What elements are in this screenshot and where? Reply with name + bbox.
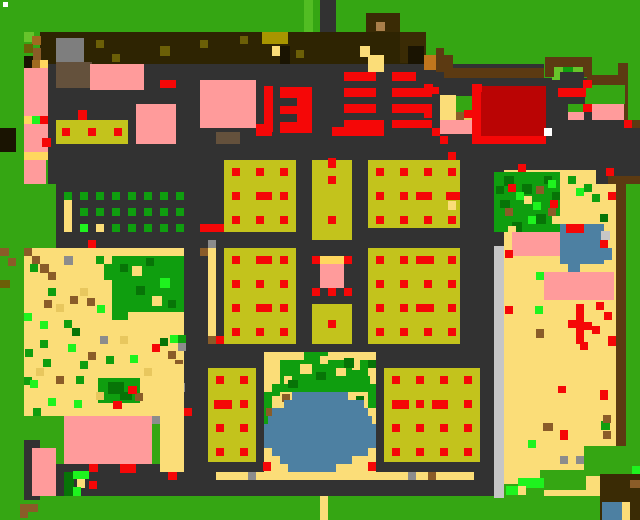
red-speck (505, 306, 513, 314)
light-grass-stripe (304, 0, 313, 32)
green-speck (40, 340, 48, 348)
roof-dot-wide (256, 192, 272, 200)
brown-speck (168, 351, 176, 359)
roof-dot (424, 328, 432, 336)
fence-piece (632, 120, 640, 128)
margin-brown-speck (0, 248, 9, 256)
west-green-tile (32, 116, 40, 124)
red-speck (550, 200, 558, 208)
roof-dot (328, 320, 336, 328)
red-dot (472, 84, 482, 92)
red-dot (344, 256, 352, 264)
bright-green-speck (24, 313, 32, 321)
red-speck (604, 312, 612, 320)
tan-block-top (368, 55, 384, 72)
gray-speck (178, 343, 186, 351)
gray-speck (576, 456, 584, 464)
roof-tan-tile (448, 201, 456, 210)
roof-dot (376, 280, 384, 288)
west-yellow-row (24, 152, 48, 160)
dark-red-edge (472, 86, 481, 136)
red-bar (344, 104, 376, 113)
tan-path-narrow (208, 248, 216, 336)
bright-green-speck (68, 344, 76, 352)
gray-tile (408, 472, 416, 480)
bright-green-speck (97, 305, 105, 313)
red-speck (576, 328, 584, 336)
treeline-dark-tile (408, 46, 424, 64)
red-bar-east (558, 88, 586, 97)
west-pink-column (24, 160, 46, 184)
roof-dot-wide (416, 256, 434, 264)
autumn-tile (33, 48, 41, 56)
red-dot (440, 136, 448, 144)
pink-strip (440, 120, 472, 134)
roof-dot (400, 256, 408, 264)
dark-green-speck (120, 264, 128, 272)
farm-plot (160, 208, 168, 216)
red-dot-wide (120, 464, 136, 473)
red-dot (431, 87, 439, 94)
grass-regrowth (540, 470, 586, 490)
red-dot (263, 462, 271, 471)
gray-speck (152, 416, 160, 424)
vegetation-hole (336, 368, 346, 376)
corner-water (602, 502, 622, 520)
red-speck (576, 320, 584, 328)
pink-block-east (592, 104, 624, 120)
dirt-speck (120, 336, 128, 344)
roof-dot-wide (432, 400, 448, 409)
roof-dot (280, 328, 288, 336)
bright-green-speck (74, 400, 82, 408)
bright-green-speck (528, 216, 536, 224)
tan-path-column (160, 364, 184, 472)
roof-dot (232, 256, 240, 264)
red-speck (89, 481, 97, 489)
brown-speck (536, 329, 544, 338)
roof-dot (416, 400, 424, 408)
red-dot (89, 464, 98, 472)
green-speck (80, 361, 88, 369)
roof-dot (448, 256, 456, 264)
green-speck (584, 184, 592, 192)
roof-dot (232, 192, 240, 200)
red-bar (392, 120, 432, 128)
farm-plot-bright (80, 224, 88, 232)
red-dot (518, 164, 526, 172)
fence-horizontal (444, 68, 544, 78)
building-pink-big (64, 416, 152, 464)
brown-tile (428, 472, 436, 480)
red-dot (583, 104, 592, 112)
red-speck (600, 390, 608, 400)
roof-dot (440, 424, 448, 432)
cluster-hole (552, 216, 560, 224)
brown-speck (548, 208, 556, 216)
red-dot (624, 120, 632, 128)
roof-dot (280, 216, 288, 224)
red-dot (464, 110, 472, 118)
farm-plot (160, 224, 168, 232)
roof-dot (448, 168, 456, 176)
farm-plot (176, 208, 184, 216)
roof-dot (328, 176, 336, 184)
farm-plot (160, 192, 168, 200)
green-speck (64, 320, 72, 328)
roof-dot (392, 448, 400, 456)
farm-plot (128, 192, 136, 200)
roof-dot (424, 168, 432, 176)
fence-stub (436, 48, 444, 72)
bright-green-speck (130, 355, 138, 363)
farm-plot (176, 192, 184, 200)
fence-arch-leg (545, 57, 554, 77)
farm-plot (80, 192, 88, 200)
white-speck (3, 2, 8, 7)
dark-green-speck (146, 258, 154, 266)
treeline-speck (200, 40, 208, 48)
pond (284, 400, 364, 408)
roof-dot-wide (416, 304, 434, 312)
grass-tile (568, 104, 584, 112)
brown-speck (603, 431, 611, 439)
corner-tan-column (622, 502, 630, 520)
brown-tile (208, 336, 216, 344)
brown-roof-small (216, 132, 240, 144)
pond (272, 448, 368, 456)
farm-plot (112, 208, 120, 216)
bright-green-speck (516, 192, 524, 200)
pond (264, 424, 376, 448)
roof-dot (464, 424, 472, 432)
dirt-speck (80, 288, 88, 296)
pond-vegetation (272, 384, 280, 396)
bright-green-speck (160, 278, 170, 288)
red-dot (312, 288, 320, 296)
building-pink-large (200, 80, 256, 128)
dark-green-tile (288, 380, 298, 388)
roof-dot (400, 328, 408, 336)
farm-plot (64, 192, 72, 200)
dark-green-speck (168, 300, 176, 308)
red-speck (568, 320, 576, 328)
red-speck (560, 430, 568, 440)
bright-green-speck (48, 398, 56, 406)
bright-green-speck (576, 188, 584, 196)
autumn-tile (24, 60, 32, 68)
dark-green-tile (316, 372, 326, 380)
red-speck (584, 322, 592, 330)
brown-speck (56, 376, 64, 384)
roof-dot (256, 168, 264, 176)
roof-dot (216, 376, 224, 384)
dark-red-bottom (472, 136, 546, 144)
cluster-hole (152, 296, 162, 306)
roof-dot (216, 448, 224, 456)
roof-dot (240, 400, 248, 408)
cluster-hole (132, 266, 142, 276)
south-exit-path (320, 496, 328, 520)
roof-dot (448, 328, 456, 336)
farm-plot (96, 192, 104, 200)
roof-dot (400, 192, 408, 200)
red-dot (432, 128, 440, 136)
gray-roof-block (56, 38, 84, 62)
roof-dot (88, 128, 96, 136)
roof-dot (280, 280, 288, 288)
roof-dot (280, 256, 288, 264)
roof-dot-wide (256, 304, 272, 312)
pond (268, 416, 372, 424)
roof-dot (256, 328, 264, 336)
green-speck (30, 264, 38, 272)
tan-tile (518, 486, 526, 495)
dirt-speck (36, 368, 44, 376)
red-structure-foot (256, 124, 272, 136)
red-speck (608, 336, 616, 346)
red-speck (152, 344, 160, 352)
roof-dot (400, 304, 408, 312)
farm-plot (144, 224, 152, 232)
treeline-speck (112, 54, 120, 62)
water-bump (568, 264, 580, 272)
brown-speck (603, 415, 611, 423)
roof-dot-wide (416, 192, 432, 200)
green-speck (76, 376, 84, 384)
pink-tile (568, 112, 584, 120)
roof-dot (256, 280, 264, 288)
dirt-speck (144, 368, 152, 376)
autumn-tile (24, 44, 33, 53)
roof-dot (464, 400, 472, 408)
red-structure-notch (280, 98, 297, 106)
dark-green-speck (160, 338, 168, 346)
autumn-tile (32, 60, 40, 68)
autumn-tile (40, 60, 48, 68)
brown-speck (70, 296, 78, 304)
dark-green-speck (500, 200, 510, 208)
roof-dot (376, 192, 384, 200)
roof-dot (392, 376, 400, 384)
water-bump (604, 248, 612, 260)
roof-dot (448, 304, 456, 312)
roof-dot (62, 128, 70, 136)
roof-dot-wide (256, 256, 272, 264)
red-structure-notch (280, 114, 297, 122)
roof-dot (440, 448, 448, 456)
roof-dot (464, 448, 472, 456)
bright-green-speck (533, 202, 541, 210)
west-yellow-tile (24, 116, 32, 124)
pink-center-awning (320, 256, 344, 264)
farm-plot (80, 208, 88, 216)
farm-plot (112, 192, 120, 200)
green-speck (178, 335, 186, 343)
red-dot (78, 110, 87, 120)
red-bar (392, 72, 416, 81)
bright-green-speck (30, 380, 38, 388)
roof-dot-wide (446, 192, 460, 200)
gray-tile (208, 240, 216, 248)
dark-green-speck (72, 328, 80, 336)
green-speck (568, 176, 576, 184)
roof-dot (240, 448, 248, 456)
gray-tile (601, 231, 610, 240)
grove-light-brown (376, 22, 385, 31)
roof-dot (448, 216, 456, 224)
farm-plot-tan (96, 224, 104, 232)
red-speck (576, 312, 584, 320)
roof-dot (376, 168, 384, 176)
roof-dot (232, 216, 240, 224)
red-speck (580, 342, 588, 350)
roof-dot (448, 280, 456, 288)
roof-dot (280, 304, 288, 312)
dark-green-speck (496, 186, 504, 194)
dark-green-tile (344, 358, 354, 368)
red-dot (583, 80, 592, 88)
dirt-speck (56, 304, 64, 312)
white-tile (544, 128, 552, 136)
fence-arch-leg (583, 57, 592, 77)
gray-speck (560, 456, 568, 464)
red-speck (576, 304, 584, 312)
roof-dot (232, 168, 240, 176)
bright-green-speck (40, 321, 48, 329)
roof-dot (392, 424, 400, 432)
red-dot (505, 250, 513, 258)
building-dark-red (472, 86, 546, 138)
roof-dot (280, 168, 288, 176)
building-pink-east-1 (512, 232, 560, 256)
roof-dot (240, 376, 248, 384)
roof-dot (440, 376, 448, 384)
red-dot (312, 256, 320, 264)
red-speck (608, 192, 616, 200)
red-dot (184, 408, 192, 416)
dark-green-tile (368, 360, 376, 368)
west-red-tile (40, 116, 48, 124)
roof-dot (400, 280, 408, 288)
brown-speck (32, 256, 40, 264)
treeline-speck (296, 50, 304, 58)
pond-vegetation (360, 376, 370, 388)
red-dot (328, 288, 336, 296)
red-dot (368, 462, 376, 471)
roof-dot (232, 304, 240, 312)
farm-plot (112, 224, 120, 232)
roof-dot (464, 376, 472, 384)
brown-speck (543, 423, 553, 431)
roof-dot (400, 216, 408, 224)
farm-plot (128, 208, 136, 216)
brown-speck (536, 186, 544, 194)
corner-brown-tile (630, 480, 640, 488)
brown-speck (505, 208, 513, 216)
red-bar-notch (332, 120, 344, 127)
red-speck (558, 386, 566, 393)
roof-dot-wide (392, 400, 409, 409)
red-dot (424, 110, 432, 118)
bright-green-speck (535, 306, 543, 314)
gray-speck (64, 256, 73, 265)
brown-speck (48, 272, 56, 280)
pixel-map (0, 0, 640, 520)
building-pink-center (320, 264, 344, 288)
brown-mark (20, 504, 28, 518)
roof-dot (416, 448, 424, 456)
red-speck (128, 386, 137, 394)
pond (292, 392, 348, 400)
bright-green-speck (548, 180, 556, 188)
dark-block (560, 72, 584, 88)
roof-dot (424, 280, 432, 288)
building-pink-tall (32, 448, 56, 496)
treeline-speck (240, 36, 248, 44)
west-dark-block (0, 128, 16, 152)
roof-dot (280, 192, 288, 200)
brown-speck (44, 300, 52, 308)
farm-plot (96, 208, 104, 216)
brown-speck (87, 298, 95, 306)
vegetation-hole (300, 364, 312, 374)
farm-plot (144, 208, 152, 216)
red-dot (168, 472, 177, 480)
pond (280, 456, 352, 464)
green-speck (43, 359, 51, 367)
roof-dot-wide (214, 400, 232, 409)
bright-green-speck (528, 440, 536, 448)
red-dot (600, 240, 608, 248)
roof-dot (416, 376, 424, 384)
red-bar-small (200, 224, 224, 232)
brown-tile (200, 248, 208, 256)
red-bar (344, 72, 376, 81)
dark-green-speck (136, 286, 145, 295)
roof-dot (328, 216, 336, 224)
gray-tile (248, 472, 256, 480)
cluster-hole (524, 196, 532, 204)
pond (272, 408, 368, 416)
red-bar (344, 88, 376, 97)
green-speck (25, 349, 33, 357)
treeline-speck (160, 46, 170, 56)
gray-speck (100, 336, 108, 344)
pond (288, 464, 336, 472)
red-dot-wide (160, 80, 176, 88)
farm-plot (176, 224, 184, 232)
roof-dot (400, 168, 408, 176)
grass-regrowth (584, 446, 626, 476)
stone-path (494, 246, 504, 498)
dark-green-speck (600, 214, 608, 222)
treeline-speck (96, 40, 104, 48)
brown-speck (135, 393, 143, 401)
building-olive-2 (312, 160, 352, 240)
red-speck (596, 302, 604, 310)
roof-dot (376, 304, 384, 312)
roof-dot (376, 328, 384, 336)
roof-dot (232, 280, 240, 288)
brown-roof-block (56, 62, 92, 88)
red-dot (344, 288, 352, 296)
green-speck (106, 356, 114, 364)
red-dot (88, 240, 96, 248)
autumn-tile (32, 36, 41, 45)
green-speck (96, 256, 104, 264)
roof-dot (424, 216, 432, 224)
